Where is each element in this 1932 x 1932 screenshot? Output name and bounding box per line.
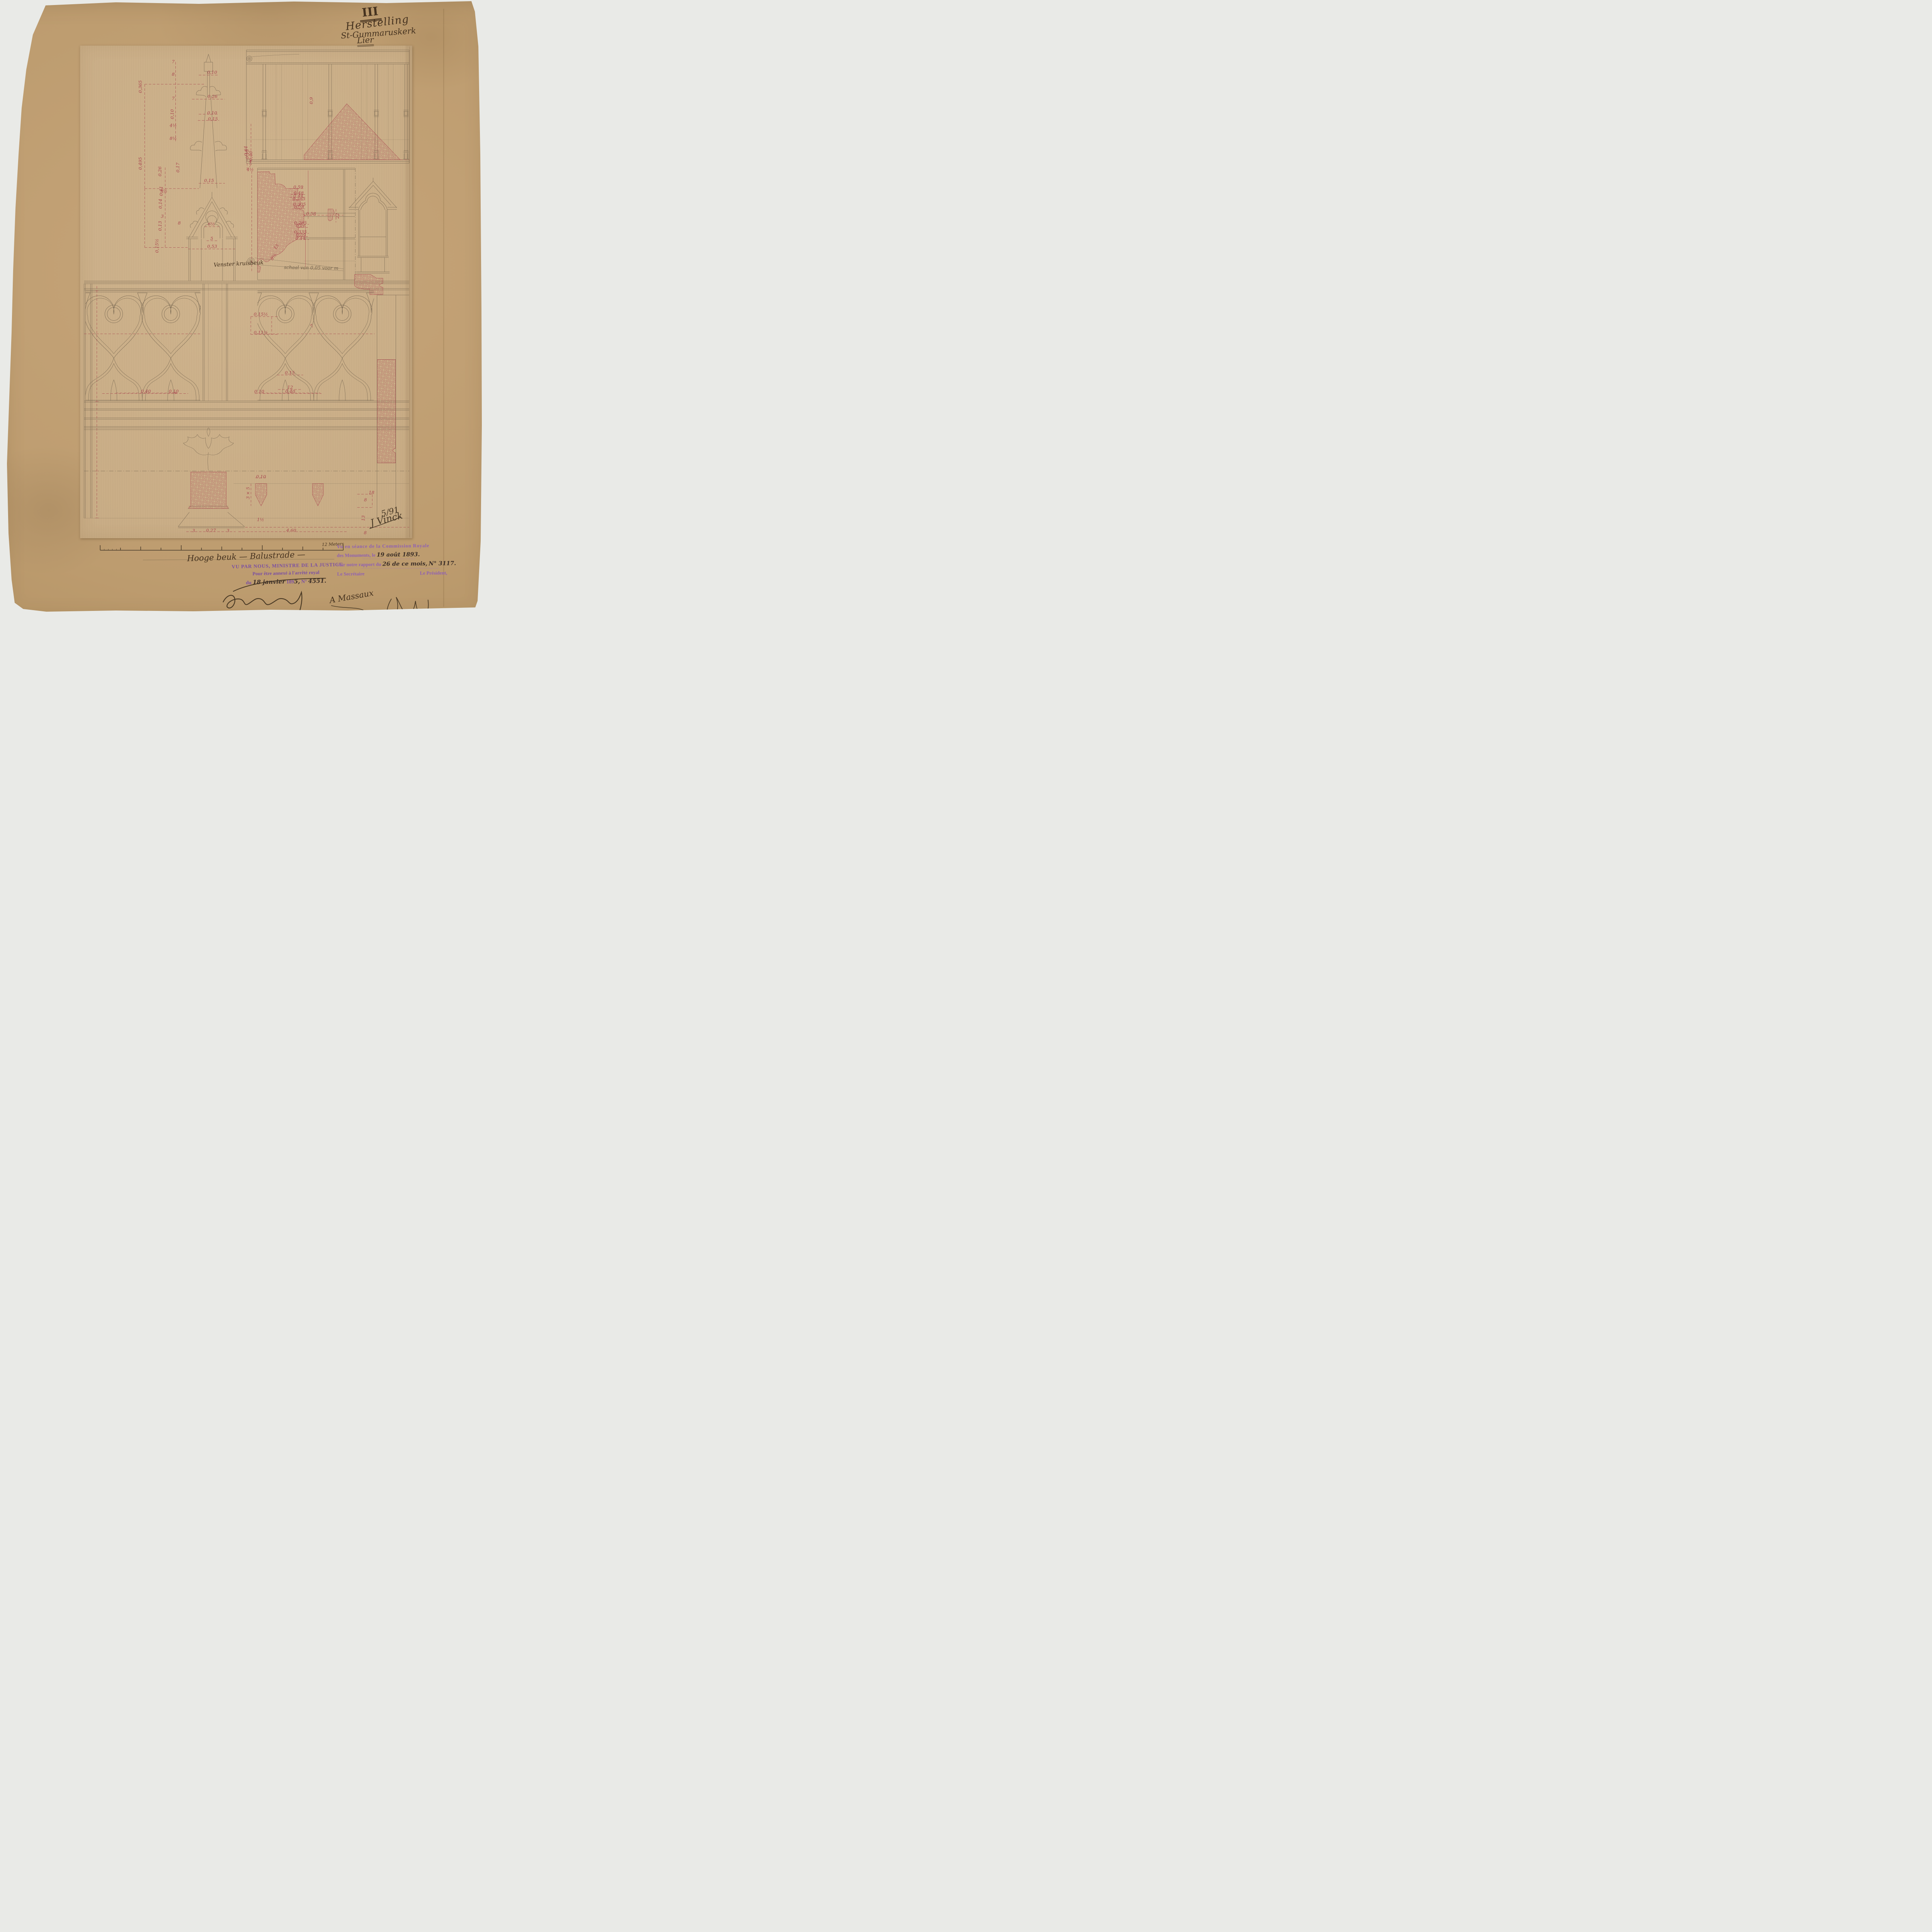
svg-text:18: 18 [369, 490, 374, 495]
sheet-right-crease [406, 46, 413, 538]
svg-text:0,53: 0,53 [207, 244, 217, 249]
commission-line3-hand: 26 de ce mois, [383, 560, 428, 567]
justice-stamp-line1: VU PAR NOUS, MINISTRE DE LA JUSTICE [231, 561, 340, 570]
stamp-year: 189 [286, 579, 294, 585]
svg-text:0,11½: 0,11½ [254, 330, 268, 335]
commission-line3-prefix: voir notre rapport du [337, 561, 381, 567]
svg-text:0,14: 0,14 [158, 199, 163, 209]
svg-text:0,44: 0,44 [296, 235, 306, 241]
commission-line1: Vu en séance de la Commission Royale [337, 543, 455, 549]
svg-text:8: 8 [364, 497, 367, 503]
svg-text:0,365: 0,365 [138, 80, 143, 93]
svg-text:0,10: 0,10 [207, 70, 217, 75]
svg-text:7: 7 [172, 59, 175, 65]
svg-text:8: 8 [178, 220, 180, 226]
svg-text:8: 8 [364, 530, 367, 536]
svg-text:0,10: 0,10 [170, 109, 175, 119]
scanned-archival-drawing: 0,3650,4950,417870,104½8½0,100,260,100,1… [0, 0, 490, 622]
red-section-hatching [189, 104, 400, 509]
stamp-no: N° [301, 578, 307, 584]
secretary-label: Le Secrétaire [337, 571, 364, 577]
svg-text:0,15: 0,15 [285, 370, 295, 376]
hand-date: 18 janvier [253, 578, 285, 586]
hand-no: 4551. [308, 577, 326, 585]
svg-text:1½: 1½ [257, 517, 264, 522]
commission-line3-no: N° 3117. [429, 560, 456, 567]
commission-line2-prefix: des Monuments, le [337, 553, 376, 558]
title-line-3: Lier [357, 35, 374, 47]
panel-scale-note: schaal van 0,05 voor m [284, 265, 338, 271]
sheet-signature-group: 5/91 J Vinck [367, 505, 404, 529]
svg-text:0,495: 0,495 [138, 157, 143, 170]
svg-text:0,9: 0,9 [309, 97, 314, 104]
svg-text:0,10: 0,10 [169, 389, 179, 394]
commission-line2: des Monuments, le 19 août 1893. [337, 551, 455, 558]
svg-text:0,15: 0,15 [204, 178, 214, 183]
drawing-sheet: 0,3650,4950,417870,104½8½0,100,260,100,1… [80, 46, 412, 538]
president-signature [386, 597, 429, 621]
svg-text:3: 3 [226, 528, 229, 533]
svg-text:3 × 5: 3 × 5 [245, 487, 251, 499]
svg-text:0,40: 0,40 [141, 389, 151, 394]
commission-line3: voir notre rapport du 26 de ce mois, N° … [337, 560, 455, 568]
svg-text:0,15½: 0,15½ [154, 239, 160, 253]
svg-text:4½: 4½ [169, 123, 177, 128]
svg-text:0,26: 0,26 [296, 223, 306, 229]
hand-year: 5, [294, 578, 300, 585]
cardboard-mat: 0,3650,4950,417870,104½8½0,100,260,100,1… [0, 0, 490, 622]
secretary-signature: A Massaux [329, 588, 374, 605]
svg-text:0,10: 0,10 [207, 110, 217, 116]
svg-text:0,40: 0,40 [248, 151, 253, 161]
svg-text:0,13: 0,13 [157, 221, 163, 231]
svg-text:4,60: 4,60 [286, 528, 296, 533]
svg-text:3: 3 [192, 528, 195, 533]
stamp-du: du [246, 580, 252, 585]
commission-line2-hand: 19 août 1893. [377, 551, 420, 558]
svg-text:8½: 8½ [170, 136, 177, 141]
commission-stamp: Vu en séance de la Commission Royale des… [337, 543, 455, 577]
svg-text:3: 3 [161, 214, 163, 219]
svg-text:0,10: 0,10 [254, 389, 264, 394]
svg-text:4½: 4½ [246, 167, 253, 172]
balustrade-tracery-right [252, 293, 376, 401]
svg-text:0,27: 0,27 [206, 528, 216, 533]
svg-text:7: 7 [172, 96, 175, 101]
balustrade-tracery-left [80, 293, 204, 401]
svg-text:0,26: 0,26 [157, 167, 163, 177]
svg-text:8: 8 [172, 71, 175, 77]
svg-text:0,59: 0,59 [293, 184, 303, 190]
svg-text:0,26: 0,26 [207, 94, 218, 99]
scale-bar [100, 545, 343, 550]
svg-text:0,585: 0,585 [293, 196, 306, 201]
svg-text:0,10: 0,10 [256, 474, 266, 479]
svg-text:0,58: 0,58 [306, 211, 316, 216]
justice-stamp-line2: Pour être annexé à l'arrêté royal [232, 569, 340, 577]
svg-text:0,15½: 0,15½ [254, 311, 268, 317]
svg-text:22: 22 [335, 213, 340, 219]
svg-text:0,40: 0,40 [285, 389, 295, 394]
president-label: Le Président, [420, 570, 447, 577]
justice-stamp: VU PAR NOUS, MINISTRE DE LA JUSTICE Pour… [231, 561, 340, 586]
svg-text:7: 7 [309, 323, 315, 329]
svg-text:6½: 6½ [208, 221, 215, 227]
drawing-linework: 0,3650,4950,417870,104½8½0,100,260,100,1… [80, 46, 412, 538]
svg-text:13: 13 [361, 515, 366, 521]
svg-text:0,28: 0,28 [294, 205, 304, 210]
svg-text:0,17: 0,17 [175, 162, 180, 172]
commission-roles: Le Secrétaire Le Président, [337, 570, 447, 577]
svg-text:5: 5 [210, 236, 213, 241]
justice-stamp-line3: du 18 janvier 1895, N° 4551. [232, 577, 340, 586]
svg-text:5½: 5½ [160, 189, 167, 194]
secretary-signature-flourish [332, 605, 364, 611]
main-caption: Hooge beuk — Balustrade — [187, 550, 306, 563]
svg-text:0,64: 0,64 [243, 146, 248, 156]
svg-text:0,15: 0,15 [208, 116, 218, 122]
